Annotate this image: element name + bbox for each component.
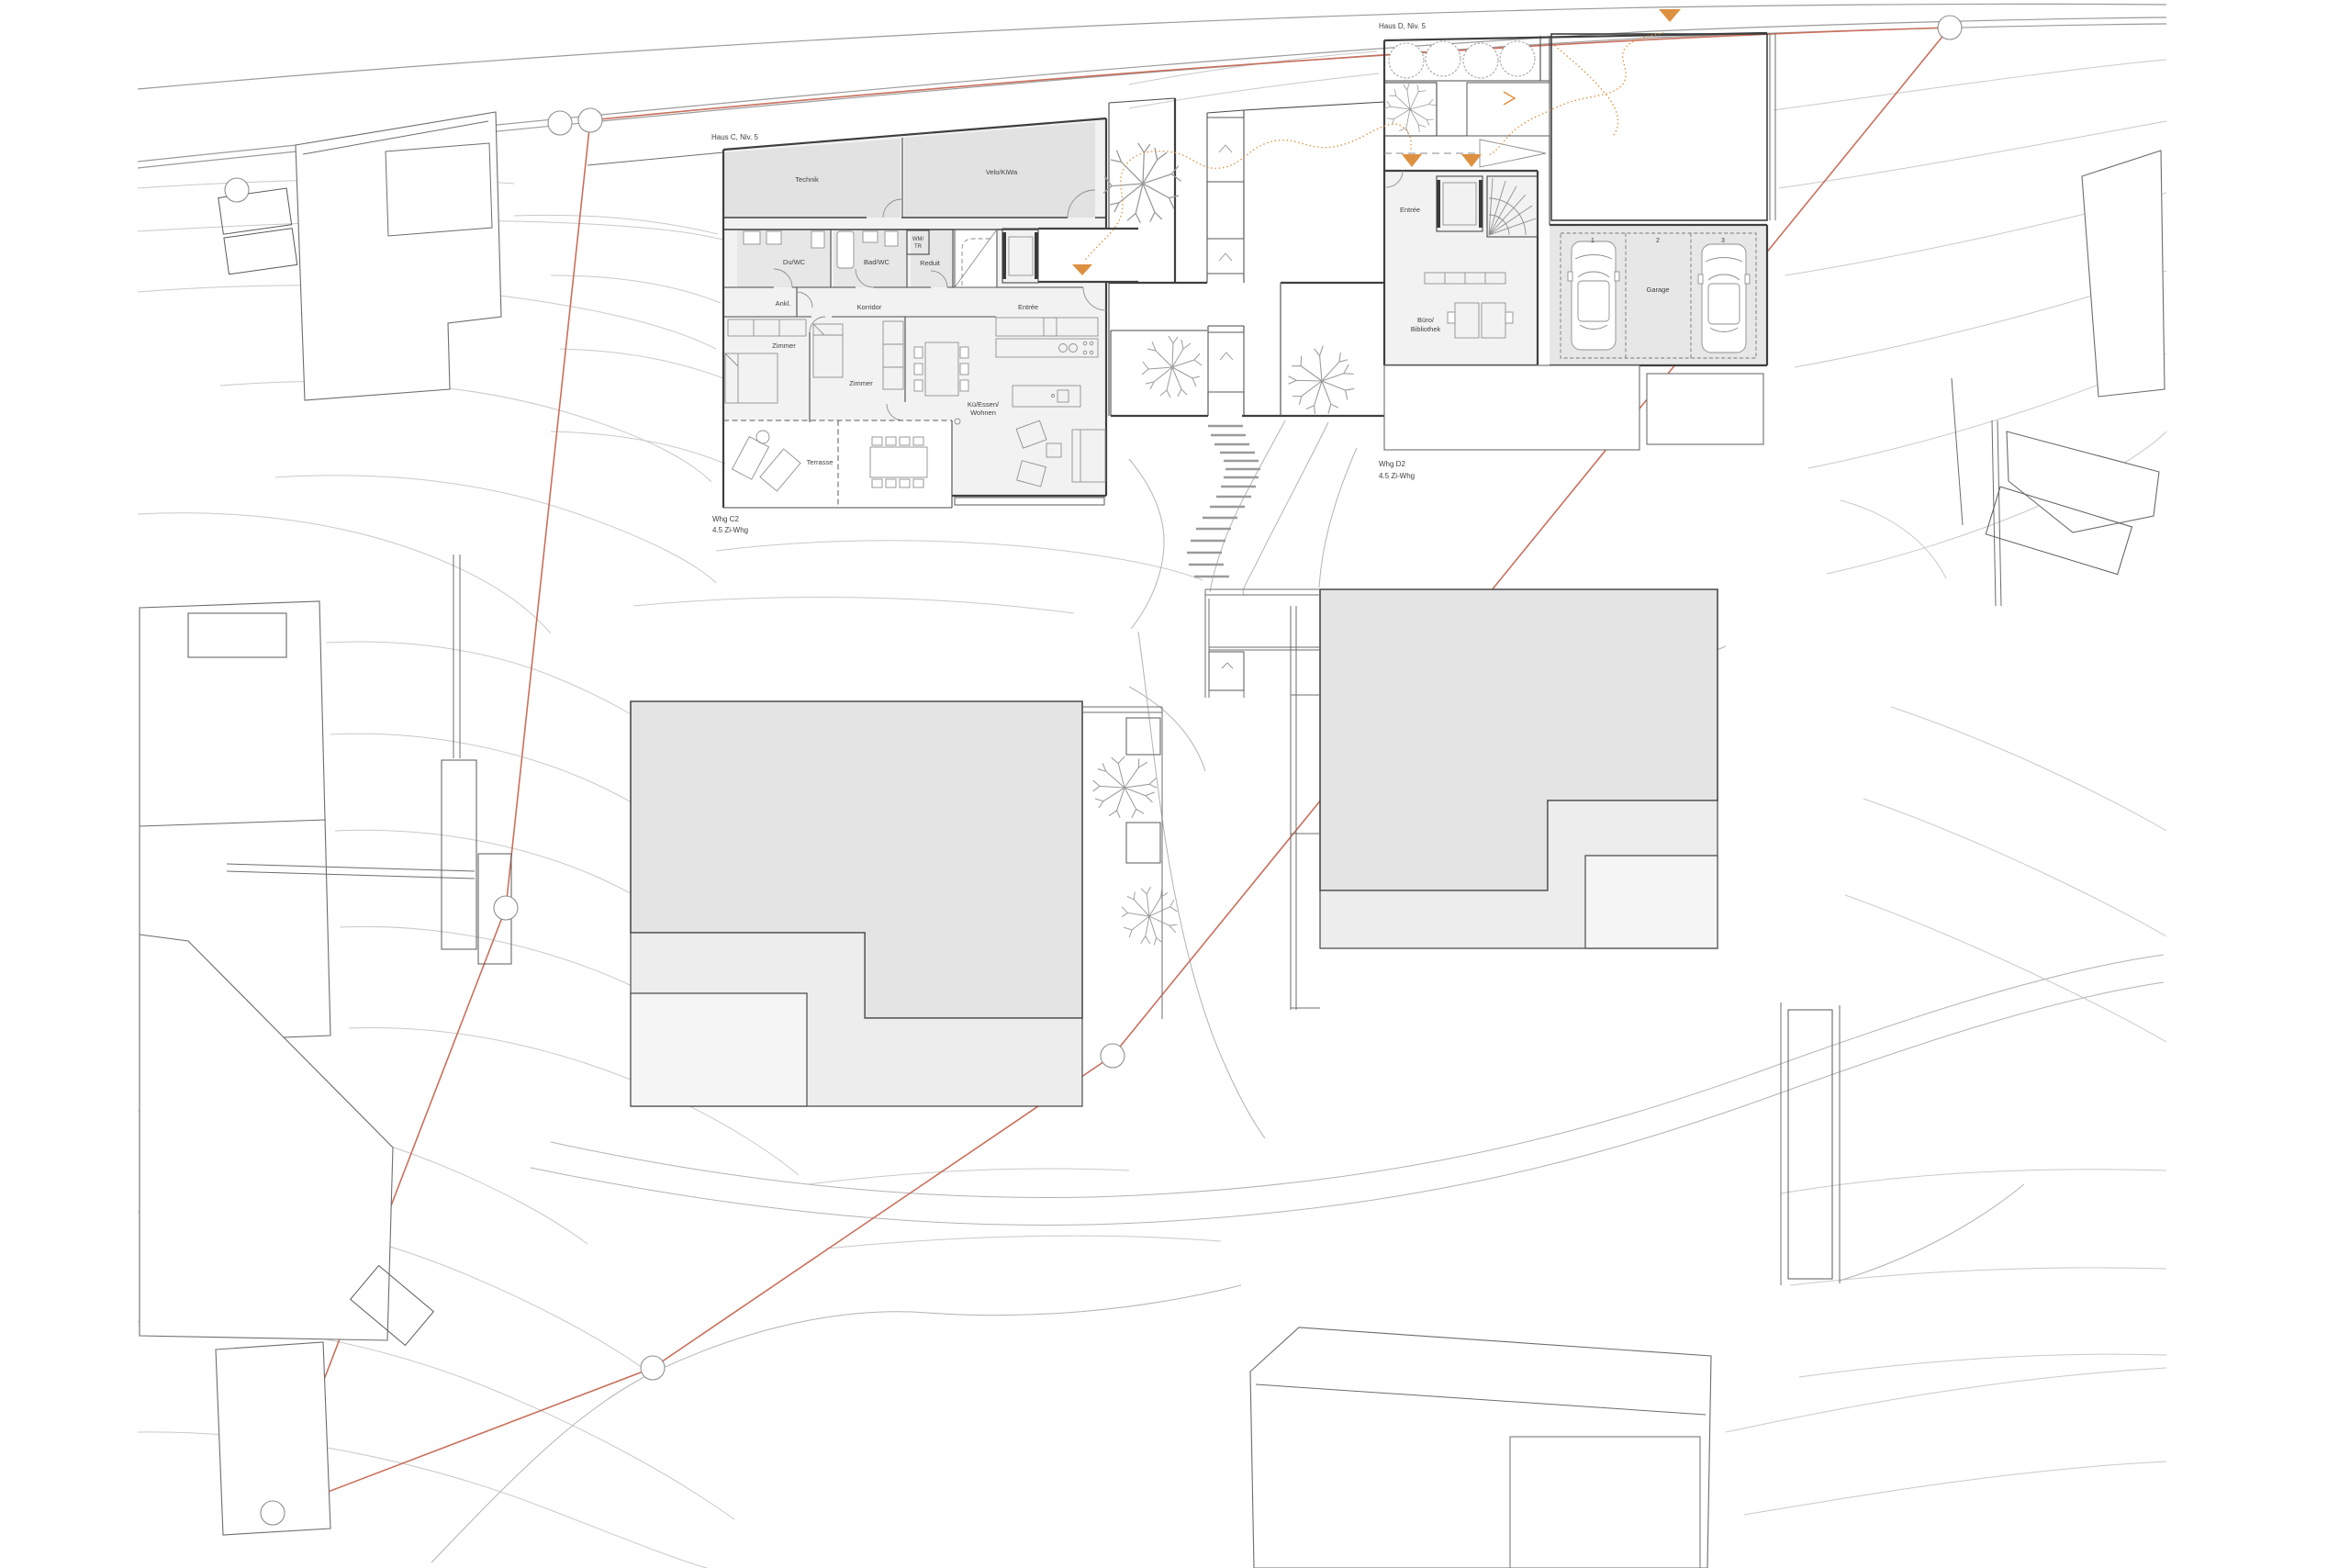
stair-direction-chevron bbox=[1220, 353, 1233, 360]
upper-terrace-wall bbox=[1244, 102, 1384, 110]
tree-icon bbox=[1113, 879, 1187, 954]
tree-icon bbox=[1103, 143, 1181, 223]
haus-c-title: Haus C, Niv. 5 bbox=[711, 133, 759, 141]
room-label-tr: TR bbox=[914, 244, 923, 250]
boundary-marker bbox=[1101, 1044, 1125, 1068]
haus-d-whg: Whg D2 bbox=[1379, 460, 1405, 468]
west-court-stairs bbox=[1209, 652, 1244, 690]
railing-right bbox=[1992, 420, 2001, 606]
boundary-marker bbox=[641, 1356, 665, 1380]
boundary-marker bbox=[225, 178, 249, 202]
room-label-garage: Garage bbox=[1646, 286, 1669, 294]
roof-canopy bbox=[1551, 34, 1767, 220]
haus-d-typ: 4.5 Zi-Whg bbox=[1379, 472, 1415, 480]
parking-spot-2: 2 bbox=[1656, 238, 1660, 244]
boundary-marker bbox=[494, 896, 518, 920]
roof-footprint-haus-c bbox=[631, 701, 1162, 1106]
room-label-entree-d: Entrée bbox=[1400, 206, 1420, 214]
stair-direction-chevron bbox=[1222, 663, 1233, 668]
room-label-buero2: Bibliothek bbox=[1411, 325, 1441, 333]
west-margin-walls bbox=[1291, 606, 1320, 1010]
tree-icon bbox=[1276, 334, 1368, 427]
apartment-floor bbox=[1384, 171, 1538, 365]
lower-terrace bbox=[1384, 365, 1639, 450]
entrance-marker-road bbox=[1659, 9, 1681, 22]
room-label-terrasse: Terrasse bbox=[807, 458, 834, 466]
stairs-bottom-right-rails bbox=[1781, 1002, 1840, 1285]
neighbour-building-right bbox=[2082, 151, 2165, 397]
roof-footprint-haus-d bbox=[1205, 589, 1718, 1010]
car-icon bbox=[1568, 241, 1619, 350]
boundary-marker bbox=[261, 1501, 285, 1525]
entrance-marker-haus-d-2 bbox=[1461, 154, 1482, 167]
room-label-buero1: Büro/ bbox=[1417, 316, 1435, 324]
boundary-marker bbox=[578, 108, 602, 132]
stairs-to-road bbox=[1207, 118, 1244, 182]
path-canopy bbox=[1555, 46, 1618, 136]
lower-court-walls bbox=[1111, 326, 1244, 416]
ramp-arrow bbox=[1480, 140, 1546, 167]
room-label-wm: WM/ bbox=[912, 237, 924, 242]
garden-steps bbox=[1187, 426, 1260, 577]
tree-icon bbox=[1376, 75, 1444, 143]
stairs-lower bbox=[1208, 332, 1244, 392]
parking-spot-3: 3 bbox=[1721, 238, 1725, 244]
room-label-technik: Technik bbox=[795, 175, 819, 184]
room-label-badwc: Bad/WC bbox=[864, 258, 890, 266]
haus-d-plan: Haus D, Niv. 5 Entrée Büro/ Bibliothek G… bbox=[1379, 22, 1775, 480]
lower-court bbox=[1647, 374, 1763, 444]
neighbour-building-bottom bbox=[1250, 1327, 1711, 1568]
tree-icon bbox=[1142, 336, 1202, 398]
road-upper-edge bbox=[138, 4, 2166, 89]
stairs-top-left bbox=[218, 188, 297, 274]
entry-stairs bbox=[1467, 83, 1550, 136]
railing-right-upper bbox=[1952, 378, 1963, 525]
site-plan-page: Haus C, Niv. 5 Technik Velo/KiWa Du/WC B… bbox=[0, 0, 2350, 1568]
room-label-velo: Velo/KiWa bbox=[986, 168, 1018, 176]
room-label-reduit: Reduit bbox=[920, 259, 941, 267]
stair-direction-chevron bbox=[1219, 145, 1232, 152]
site-wall bbox=[587, 152, 723, 165]
roof-terrace bbox=[631, 993, 807, 1106]
stairs-mid bbox=[1207, 239, 1244, 274]
site-plan-drawing: Haus C, Niv. 5 Technik Velo/KiWa Du/WC B… bbox=[0, 0, 2350, 1568]
east-court-walls bbox=[1242, 283, 1384, 416]
room-label-ankl: Ankl. bbox=[776, 299, 791, 308]
boundary-marker bbox=[548, 111, 572, 135]
terrace bbox=[723, 420, 952, 508]
side-court-stairs-lower bbox=[1126, 823, 1160, 863]
east-wall bbox=[1770, 33, 1775, 220]
neighbour-building-top-left bbox=[296, 112, 501, 400]
side-court-stairs-upper bbox=[1126, 718, 1160, 755]
stairs-bottom-right bbox=[1788, 1010, 1832, 1279]
parking-spot-1: 1 bbox=[1591, 238, 1595, 244]
garden-bed bbox=[1389, 41, 1535, 78]
boundary-marker bbox=[1938, 16, 1962, 39]
haus-d-title: Haus D, Niv. 5 bbox=[1379, 22, 1427, 30]
west-court-walls bbox=[1205, 589, 1319, 698]
room-label-duwc: Du/WC bbox=[783, 258, 806, 266]
stairwell-walls bbox=[1207, 110, 1244, 283]
stairs-garden-left-upper bbox=[442, 760, 476, 949]
path-arrow bbox=[1504, 92, 1515, 105]
window-band bbox=[955, 498, 1104, 505]
haus-c-whg: Whg C2 bbox=[712, 515, 739, 523]
courtyard-connector bbox=[1109, 98, 1384, 577]
room-label-korridor: Korridor bbox=[857, 303, 882, 311]
car-icon bbox=[1698, 244, 1750, 353]
neighbour-terrace-right bbox=[2007, 431, 2159, 532]
haus-c-plan: Haus C, Niv. 5 Technik Velo/KiWa Du/WC B… bbox=[587, 118, 1138, 534]
entrance-marker-haus-d-1 bbox=[1402, 154, 1422, 167]
room-label-entree: Entrée bbox=[1018, 303, 1038, 311]
retaining-wall-left bbox=[453, 554, 460, 758]
room-label-zimmer1: Zimmer bbox=[772, 342, 796, 350]
haus-c-typ: 4.5 Zi-Whg bbox=[712, 526, 748, 534]
tree-icon bbox=[1088, 751, 1162, 823]
room-label-zimmer2: Zimmer bbox=[849, 379, 873, 387]
roof-terrace bbox=[1585, 856, 1718, 948]
stair-direction-chevron bbox=[1219, 253, 1232, 261]
room-label-kue2: Wohnen bbox=[970, 409, 996, 417]
room-label-kue1: Kü/Essen/ bbox=[968, 400, 1000, 409]
